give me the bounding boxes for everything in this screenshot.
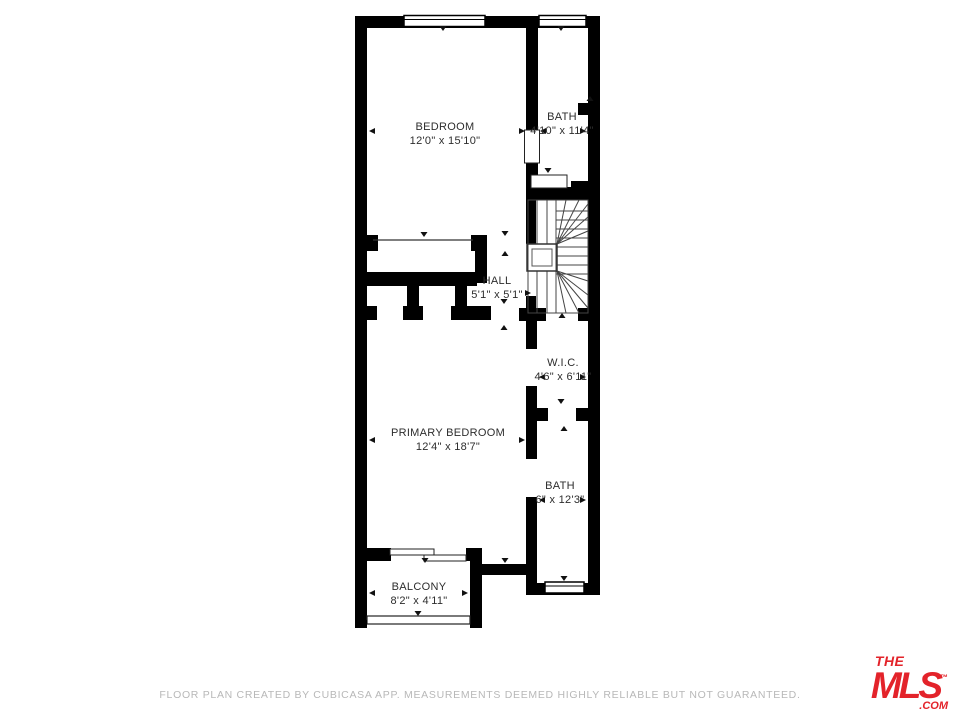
balcony-railing [355, 616, 470, 628]
floor-plan-page: BEDROOM 12'0" x 15'10" BATH 4'10" x 11'4… [0, 0, 960, 720]
room-label-bath-lower: BATH 6" x 12'3" [536, 479, 585, 507]
room-label-bath-upper: BATH 4'10" x 11'4" [530, 110, 593, 138]
room-name: BATH [530, 110, 593, 124]
room-label-primary-bedroom: PRIMARY BEDROOM 12'4" x 18'7" [391, 426, 505, 454]
room-name: BATH [536, 479, 585, 493]
room-label-bedroom: BEDROOM 12'0" x 15'10" [410, 120, 481, 148]
outer-walls [355, 16, 600, 628]
room-dimensions: 4'6" x 6'11" [535, 370, 592, 384]
logo-mls: MLS™ [871, 667, 948, 704]
floor-plan-drawing [0, 0, 960, 720]
room-name: W.I.C. [535, 356, 592, 370]
room-label-hall: HALL 5'1" x 5'1" [471, 274, 522, 302]
room-name: HALL [471, 274, 522, 288]
room-dimensions: 12'4" x 18'7" [391, 440, 505, 454]
room-dimensions: 5'1" x 5'1" [471, 288, 522, 302]
room-dimensions: 6" x 12'3" [536, 493, 585, 507]
themls-logo: THE MLS™ .COM [871, 654, 948, 712]
disclaimer-text: FLOOR PLAN CREATED BY CUBICASA APP. MEAS… [0, 689, 960, 701]
room-name: BEDROOM [410, 120, 481, 134]
room-dimensions: 4'10" x 11'4" [530, 124, 593, 138]
room-dimensions: 12'0" x 15'10" [410, 134, 481, 148]
room-name: PRIMARY BEDROOM [391, 426, 505, 440]
room-label-wic: W.I.C. 4'6" x 6'11" [535, 356, 592, 384]
room-label-balcony: BALCONY 8'2" x 4'11" [391, 580, 448, 608]
trademark-symbol: ™ [940, 673, 948, 682]
staircase [527, 200, 588, 313]
room-dimensions: 8'2" x 4'11" [391, 594, 448, 608]
room-name: BALCONY [391, 580, 448, 594]
floor-plan: BEDROOM 12'0" x 15'10" BATH 4'10" x 11'4… [0, 0, 960, 720]
